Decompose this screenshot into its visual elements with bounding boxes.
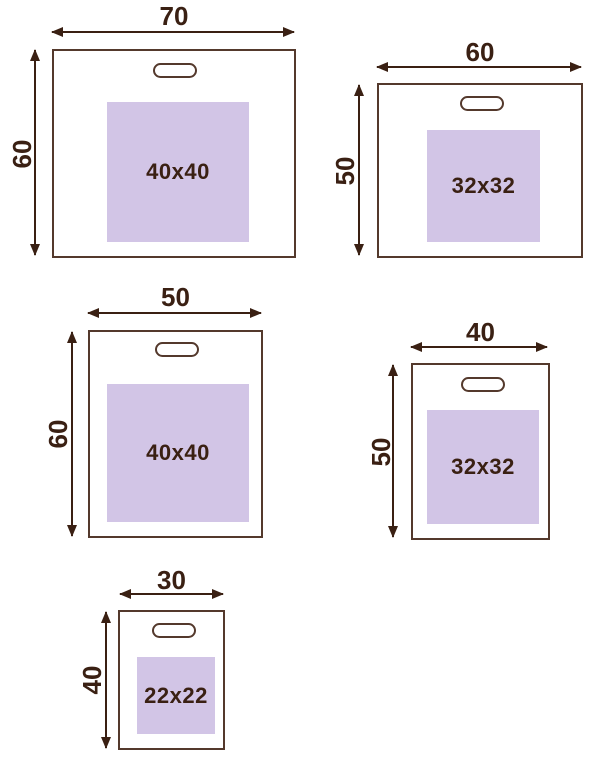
bag-30x40: 30 40 22x22 [118,610,225,750]
bag-handle-cutout [155,342,199,357]
width-dimension-arrow [377,66,581,68]
width-dimension-label: 60 [377,37,583,67]
width-dimension-arrow [120,593,223,595]
bag-outline: 40x40 [52,49,296,258]
height-dimension-label: 60 [7,137,37,171]
height-dimension-arrow [34,50,36,255]
bag-50x60: 50 60 40x40 [88,330,263,538]
bag-handle-cutout [153,63,197,78]
print-area: 32x32 [427,130,540,242]
print-area-label: 40x40 [146,440,210,466]
print-area-label: 32x32 [452,173,516,199]
bag-handle-cutout [152,623,196,638]
height-dimension-arrow [358,85,360,255]
bag-60x50: 60 50 32x32 [377,83,583,258]
height-dimension-arrow [392,365,394,537]
bag-handle-cutout [461,377,505,392]
bag-outline: 22x22 [118,610,225,750]
bag-40x50: 40 50 32x32 [411,363,550,540]
print-area-label: 32x32 [451,454,515,480]
width-dimension-label: 30 [118,565,225,595]
height-dimension-arrow [105,612,107,748]
print-area: 40x40 [107,384,249,522]
width-dimension-label: 70 [52,1,296,31]
width-dimension-arrow [52,31,294,33]
print-area-label: 22x22 [144,683,208,709]
width-dimension-arrow [411,346,547,348]
bag-70x60: 70 60 40x40 [52,49,296,258]
print-area: 32x32 [427,410,539,524]
bag-outline: 32x32 [411,363,550,540]
print-area: 22x22 [137,657,215,734]
width-dimension-label: 40 [411,317,550,347]
bag-handle-cutout [460,96,504,111]
height-dimension-label: 40 [77,663,107,697]
height-dimension-arrow [71,332,73,536]
print-area: 40x40 [107,102,249,242]
width-dimension-label: 50 [88,282,263,312]
height-dimension-label: 60 [43,417,73,451]
bag-outline: 32x32 [377,83,583,258]
bag-sizes-diagram: 70 60 40x40 60 50 32x32 50 60 [0,0,600,762]
bag-outline: 40x40 [88,330,263,538]
print-area-label: 40x40 [146,159,210,185]
width-dimension-arrow [88,312,261,314]
height-dimension-label: 50 [330,154,360,188]
